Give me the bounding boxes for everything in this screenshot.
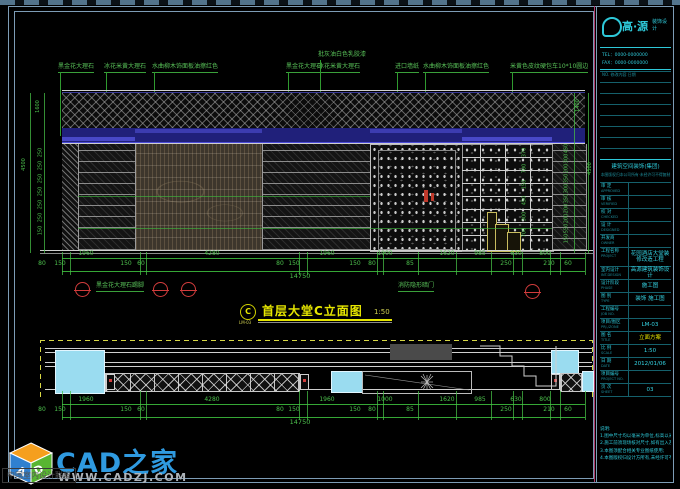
material-label: 黑金花大理石 <box>286 64 322 73</box>
titleblock-row-label: 校 对CHECKED <box>600 209 629 221</box>
plan-cabinet-xband <box>560 373 582 392</box>
plan-extension-line <box>522 391 523 420</box>
counter-step <box>507 232 521 252</box>
dim-label: 150 <box>120 261 131 267</box>
dim-chain-right: 300 <box>564 184 569 194</box>
revision-header: NO. 修改内容 日期 <box>602 72 636 78</box>
titleblock-note-line: 说明: <box>600 426 671 433</box>
material-label: 冰花米黄大理石 <box>318 64 360 73</box>
dim-right-top: 1400 <box>576 99 581 112</box>
plan-dim-label: 1000 <box>377 397 392 403</box>
slab-crosshatch <box>62 93 585 128</box>
titleblock-row: 开发商OWNER <box>600 235 671 248</box>
titleblock-row-value <box>629 306 671 318</box>
titleblock-row-value <box>629 196 671 208</box>
titleblock-row: 比 例SCALE1:50 <box>600 345 671 358</box>
titleblock-row-label: 室内设计INT.DESIGN <box>600 267 629 279</box>
titleblock-notes: 说明:1.图中尺寸均以毫米为单位,标高以米为单位;2.施工前须现场核对尺寸,如有… <box>600 426 671 462</box>
dim-chain-left: 150 <box>38 226 43 236</box>
titleblock-row-value <box>629 222 671 234</box>
titleblock-row-label: 比 例SCALE <box>600 345 629 357</box>
plan-extension-line <box>513 391 514 420</box>
plan-dim-label: 60 <box>137 407 145 413</box>
plan-extension-line <box>418 391 419 420</box>
titleblock-row-label: 开发商OWNER <box>600 235 629 247</box>
wall-pilaster-right <box>552 144 587 250</box>
door-handle-mark <box>424 190 428 202</box>
extension-line <box>418 252 419 275</box>
plan-column-fill <box>331 371 363 393</box>
dim-label: 250 <box>500 261 511 267</box>
plan-dim-label: 250 <box>500 407 511 413</box>
material-label: 黑金花大理石 <box>58 64 94 73</box>
dim-label: 80 <box>276 261 284 267</box>
titleblock-row-label: 工程名称PROJECT <box>600 248 629 266</box>
company-contact: TEL：0000-0000000 FAX：0000-0000000 <box>600 49 671 70</box>
titleblock-note-line: 3.本图须配合相关专业图纸使用; <box>600 448 671 455</box>
plan-dim-label: 1960 <box>319 397 334 403</box>
plan-dim-label: 85 <box>406 407 414 413</box>
titleblock-row-label: 项目/图区PRJ./ZONE <box>600 319 629 331</box>
titleblock-row: 工程编号JOB NO. <box>600 306 671 319</box>
dim-label: 150 <box>349 261 360 267</box>
titleblock-row: 审 定APPROVED <box>600 183 671 196</box>
dim-chain-right: 200 <box>564 164 569 174</box>
company-logo-sub: 装饰设计 <box>652 19 670 33</box>
plant-symbol <box>421 374 433 390</box>
ceiling-step <box>370 129 462 133</box>
door-handle-mark <box>431 193 434 201</box>
plan-desk-steps <box>478 342 560 390</box>
dim-chain-right: 300 <box>564 154 569 164</box>
dim-chain-right: 550 <box>564 224 569 234</box>
plan-marker <box>106 374 115 390</box>
dim-label: 60 <box>564 261 572 267</box>
titleblock-row-label: 设 计DESIGNED <box>600 222 629 234</box>
titleblock-row: 室内设计INT.DESIGN高源建筑装饰设计 <box>600 267 671 280</box>
dim-chain-left: 250 <box>38 174 43 184</box>
titleblock-row-label: 图 别TYPE <box>600 293 629 305</box>
plan-column-fill <box>55 350 105 394</box>
elevation-scale: 1:50 <box>374 308 390 316</box>
titleblock-row-value <box>629 235 671 247</box>
titleblock-row-value: 03 <box>629 384 671 396</box>
dim-label: 1620 <box>439 251 454 257</box>
elevation-top-line <box>62 90 585 91</box>
material-label: 批灰油白色乳胶漆 <box>318 52 366 60</box>
dim-chain-right: 200 <box>564 214 569 224</box>
plan-dim-label: 150 <box>120 407 131 413</box>
extension-line <box>377 252 378 275</box>
plan-dim-label: 4280 <box>204 397 219 403</box>
detail-marker-circle <box>153 282 168 297</box>
plan-dim-label: 150 <box>54 407 65 413</box>
plan-extension-line <box>550 391 551 420</box>
material-label: 进口墙纸 <box>395 64 419 73</box>
titleblock-row-value: 2012/01/06 <box>629 358 671 370</box>
extension-line <box>550 252 551 275</box>
wall-pilaster-left <box>62 144 78 250</box>
titleblock-row-value: 装饰 施工图 <box>629 293 671 305</box>
plan-dashed-left <box>40 340 41 397</box>
dim-label: 80 <box>38 261 46 267</box>
company-logo-icon <box>602 17 622 37</box>
dim-label: 630 <box>510 251 521 257</box>
material-label: 米黄色皮纹硬包车10*10圆边 <box>510 64 588 73</box>
dim-chain-inner: 370 <box>522 148 527 158</box>
cadzj-url-text: WWW.CADZJ.COM <box>58 471 188 484</box>
titleblock-row-value: 立面方案 <box>629 332 671 344</box>
plan-dim-label: 80 <box>38 407 46 413</box>
leader-line <box>60 72 61 136</box>
dim-right-total: 4500 <box>588 162 593 175</box>
plan-extension-line <box>299 391 300 420</box>
dim-chain-left: 250 <box>38 187 43 197</box>
hidden-door-label: 消防隐形暗门 <box>398 283 434 292</box>
dim-label: 985 <box>474 251 485 257</box>
org-name: 建筑空间装饰(集团) <box>600 162 671 170</box>
plan-dim-label: 150 <box>349 407 360 413</box>
dim-label: 60 <box>137 261 145 267</box>
titleblock-row: 图 别TYPE装饰 施工图 <box>600 293 671 306</box>
dim-label: 1960 <box>78 251 93 257</box>
extension-line <box>522 252 523 275</box>
titleblock-row-value <box>629 371 671 383</box>
plan-extension-line <box>377 391 378 420</box>
titleblock-row-label: 项目编号PROJECT NO. <box>600 371 629 383</box>
dim-chain-inner: 700 <box>522 164 527 174</box>
dim-chain-inner: 300 <box>522 212 527 222</box>
company-logo-name: 高·源 <box>622 18 648 34</box>
dim-label: 80 <box>368 261 376 267</box>
plan-extension-line <box>383 391 384 420</box>
titleblock-row-value <box>629 183 671 195</box>
titleblock-row-value: 1:50 <box>629 345 671 357</box>
title-underline <box>258 319 392 321</box>
extension-line <box>491 252 492 275</box>
plan-dim-label: 210 <box>543 407 554 413</box>
dim-label: 85 <box>406 261 414 267</box>
dim-chain-left: 250 <box>38 161 43 171</box>
hidden-door-frame <box>378 150 456 250</box>
titleblock-row: 项目/图区PRJ./ZONELM-03 <box>600 319 671 332</box>
extension-line <box>560 252 561 275</box>
plan-extension-line <box>62 391 63 420</box>
plan-cabinet-xband <box>105 373 300 392</box>
elevation-marker-bubble: C <box>240 304 256 320</box>
ceiling-step <box>62 137 135 141</box>
titleblock-row-label: 审 核VERIFIED <box>600 196 629 208</box>
wall-panel-wood <box>135 144 264 250</box>
plan-dim-label: 985 <box>474 397 485 403</box>
plan-dashed-top <box>40 340 592 341</box>
material-label: 水曲柳木饰面板油擦红色 <box>152 64 218 73</box>
dim-chain-left: 250 <box>38 148 43 158</box>
titleblock-note-line: 1.图中尺寸均以毫米为单位,标高以米为单位; <box>600 433 671 440</box>
extension-line <box>70 252 71 275</box>
titleblock-row-label: 日 期DATE <box>600 358 629 370</box>
plan-column-fill <box>582 371 594 392</box>
company-logo-area: 高·源 装饰设计 <box>600 11 671 48</box>
green-ref-line <box>78 196 370 197</box>
titleblock-row-label: 审 定APPROVED <box>600 183 629 195</box>
sheet-top-dashed-border <box>0 0 680 5</box>
titleblock-row: 图 名TITLE立面方案 <box>600 332 671 345</box>
dim-chain-inner: 700 <box>522 228 527 238</box>
dim-label: 210 <box>543 261 554 267</box>
revision-table: NO. 修改内容 日期 <box>600 71 671 160</box>
dim-label: 1960 <box>319 251 334 257</box>
titleblock-row: 设计阶段PHASE施工图 <box>600 280 671 293</box>
extension-line <box>383 252 384 275</box>
dim-left-top: 1600 <box>36 100 41 113</box>
dim-chain-right: 450 <box>564 144 569 154</box>
elevation-title: 首层大堂C立面图 <box>262 302 363 319</box>
extension-line <box>146 252 147 275</box>
plan-dim-label: 1960 <box>78 397 93 403</box>
ceiling-step <box>462 137 552 141</box>
titleblock-row-value <box>629 209 671 221</box>
plan-dim-label: 80 <box>368 407 376 413</box>
plan-gray-block <box>390 344 452 360</box>
extension-line <box>585 252 586 275</box>
wall-panel-slats-a <box>78 144 137 250</box>
titleblock-row-value: LM-03 <box>629 319 671 331</box>
material-label: 冰花米黄大理石 <box>104 64 146 73</box>
dim-label: 800 <box>539 251 550 257</box>
titleblock-row: 项目编号PROJECT NO. <box>600 371 671 384</box>
material-label: 水曲柳木饰面板油擦红色 <box>423 64 489 73</box>
titleblock-row-label: 设计阶段PHASE <box>600 280 629 292</box>
plan-dim-label: 1620 <box>439 397 454 403</box>
dim-label: 150 <box>288 261 299 267</box>
dim-chain-left: 250 <box>38 213 43 223</box>
plan-extension-line <box>560 391 561 420</box>
company-tel: TEL：0000-0000000 <box>602 52 648 58</box>
plan-extension-line <box>491 391 492 420</box>
dim-label: 1000 <box>377 251 392 257</box>
plan-extension-line <box>70 391 71 420</box>
plan-extension-line <box>307 391 308 420</box>
dim-chain-left: 250 <box>38 200 43 210</box>
detail-marker-circle <box>525 284 540 299</box>
dim-chain-right: 200 <box>564 204 569 214</box>
extension-line <box>513 252 514 275</box>
dim-label: 4280 <box>204 251 219 257</box>
skirting-label: 黑金花大理石踢脚 <box>96 283 144 292</box>
plan-extension-line <box>140 391 141 420</box>
titleblock-note-line: 2.施工前须现场核对尺寸,如有出入及时通知设计师; <box>600 440 671 447</box>
plan-dim-label: 150 <box>288 407 299 413</box>
dim-chain-right: 150 <box>564 234 569 244</box>
dim-left-total: 4500 <box>22 158 27 171</box>
plan-dim-label: 60 <box>564 407 572 413</box>
extension-line <box>140 252 141 275</box>
titleblock-pink-rule <box>594 6 595 482</box>
plan-dim-label: 800 <box>539 397 550 403</box>
dim-chain-inner: 450 <box>522 196 527 206</box>
extension-line <box>307 252 308 275</box>
plan-dim-label: 630 <box>510 397 521 403</box>
titleblock-fields: 审 定APPROVED审 核VERIFIED校 对CHECKED设 计DESIG… <box>600 182 671 397</box>
titleblock-row-label: 工程编号JOB NO. <box>600 306 629 318</box>
titleblock-row: 设 计DESIGNED <box>600 222 671 235</box>
titleblock-row-label: 图 名TITLE <box>600 332 629 344</box>
titleblock-row: 校 对CHECKED <box>600 209 671 222</box>
plan-extension-line <box>456 391 457 420</box>
design-site-badge: 中国室内设计联盟 <box>2 468 76 483</box>
titleblock-row-label: 页 次SHEET <box>600 384 629 396</box>
elevation-marker-sheet: LM-03 <box>239 320 251 325</box>
titleblock-row-value: 施工图 <box>629 280 671 292</box>
plan-extension-line <box>585 391 586 420</box>
dim-label: 150 <box>54 261 65 267</box>
titleblock-row: 审 核VERIFIED <box>600 196 671 209</box>
ceiling-step <box>135 129 262 133</box>
plan-dim-label: 80 <box>276 407 284 413</box>
titleblock-row: 日 期DATE2012/01/06 <box>600 358 671 371</box>
detail-marker-circle <box>181 282 196 297</box>
extension-line <box>299 252 300 275</box>
elevation-marker-letter: C <box>245 307 251 316</box>
titleblock-row-value: 花园酒店大堂装修改造工程 <box>629 248 671 266</box>
cad-drawing-canvas: 黑金花大理石 冰花米黄大理石 水曲柳木饰面板油擦红色 黑金花大理石 批灰油白色乳… <box>0 0 680 489</box>
plan-marker <box>300 374 309 390</box>
titleblock-row: 工程名称PROJECT花园酒店大堂装修改造工程 <box>600 248 671 267</box>
extension-line <box>62 252 63 275</box>
titleblock: 高·源 装饰设计 TEL：0000-0000000 FAX：0000-00000… <box>596 6 674 482</box>
wall-panel-slats-b <box>262 144 372 250</box>
dim-chain-inner: 150 <box>522 180 527 190</box>
green-ref-line <box>78 228 552 229</box>
plan-extension-line <box>146 391 147 420</box>
extension-line <box>456 252 457 275</box>
dim-chain-right: 350 <box>564 174 569 184</box>
dim-chain-right: 350 <box>564 194 569 204</box>
titleblock-note-line: 4.本图版权归设计方所有,未经许可不得复制转用。 <box>600 455 671 462</box>
company-fax: FAX：0000-0000000 <box>602 60 648 66</box>
titleblock-row: 页 次SHEET03 <box>600 384 671 397</box>
title-underline-2 <box>258 322 392 323</box>
detail-marker-circle <box>75 282 90 297</box>
titleblock-row-value: 高源建筑装饰设计 <box>629 267 671 279</box>
copyright-note: 本图版权归本公司所有·未经许可不得复制 <box>600 172 671 178</box>
